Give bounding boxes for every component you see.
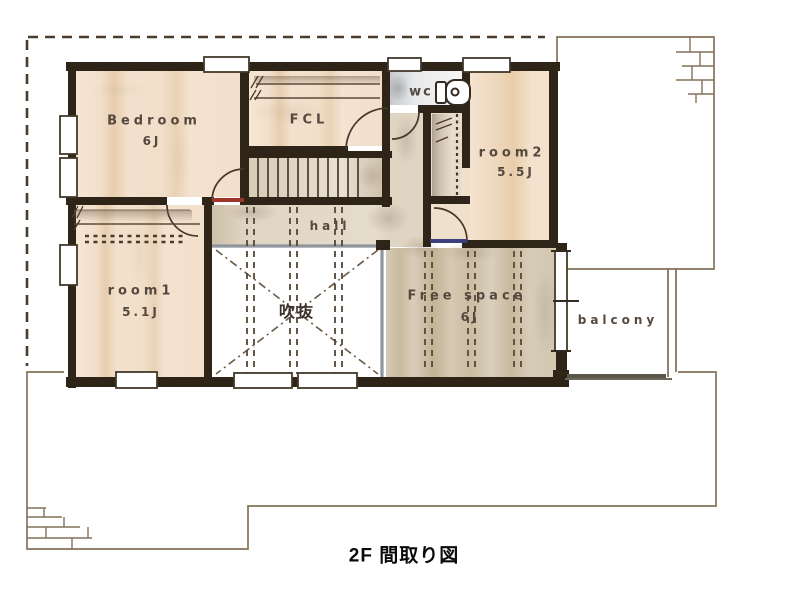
toilet-icon [436,80,470,105]
window-room1-bottom [116,372,157,388]
wall-right-upper [549,62,558,248]
bedroom-label: Bedroom [107,114,201,129]
window-bedroom-left-1 [60,116,77,154]
window-wc-top [388,58,421,71]
void-label: 吹抜 [279,298,315,322]
brick-hatch-bottom-left [27,508,92,549]
room2-label: room2 [479,146,546,161]
balcony-label: balcony [578,313,659,327]
wall-left [68,62,76,388]
threshold-blue [430,239,467,243]
hall-label: hall [310,219,351,233]
wall-room2-bottom [462,240,558,248]
threshold-red [212,198,244,202]
window-bedroom-left-2 [60,158,77,197]
wall-room2-left [462,62,470,168]
floor-plan-page: Bedroom 6J FCL wc room2 5.5J hall room1 … [0,0,800,600]
floor-plan-drawing [0,0,800,600]
free-space-label: Free space [408,289,527,304]
stairs-top-rail [248,151,392,158]
wall-fcl-wc-divider [382,62,390,207]
stairs-bottom-rail [244,197,392,205]
window-room2-top [463,58,510,72]
window-room1-left [60,245,77,285]
room1-label: room1 [108,284,175,299]
wall-closet-left [423,105,431,247]
window-void-bottom-1 [234,373,292,388]
void-corner-stub [376,240,390,250]
bedroom-size: 6J [143,134,162,148]
wall-bedroom-fcl-divider [240,62,249,205]
window-bedroom-top [204,57,249,72]
room1-size: 5.1J [122,305,160,319]
window-void-bottom-2 [298,373,357,388]
wall-room1-hall-divider [204,197,212,386]
free-space-size: 6J [461,310,480,324]
wall-bedroom-bottom [66,197,167,205]
brick-hatch-top-right [676,37,714,103]
wc-label: wc [409,85,433,100]
room2-size: 5.5J [497,165,535,179]
plan-caption: 2F 間取り図 [349,541,459,568]
fcl-label: FCL [290,113,329,128]
wall-closet-bottom [423,196,470,204]
